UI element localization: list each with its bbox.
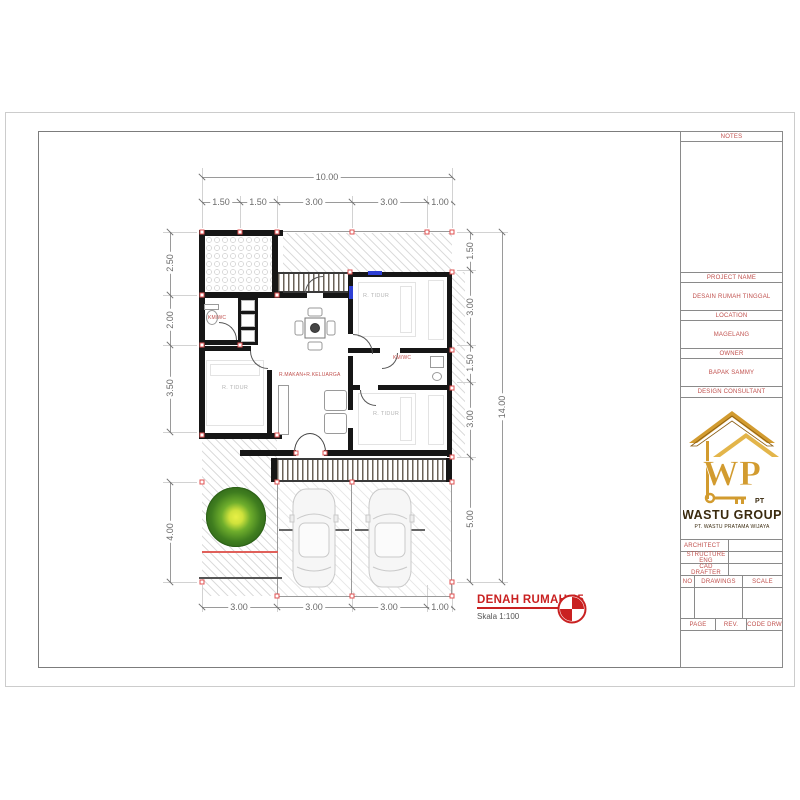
bed-pillow <box>210 364 260 376</box>
grid-marker <box>200 580 205 585</box>
dining-set <box>293 306 337 352</box>
garden-fence-line <box>199 577 282 579</box>
sofa-seat <box>324 413 347 434</box>
grid-marker <box>323 451 328 456</box>
logo-subtitle: PT. WASTU PRATAMA WIJAYA <box>694 524 770 530</box>
grid-marker <box>200 230 205 235</box>
wall-segment <box>199 340 243 345</box>
logo-monogram: WP <box>702 453 760 493</box>
terrace-tile-floor <box>205 236 272 292</box>
room-label-bedroom: R. TIDUR <box>363 293 389 299</box>
grid-marker <box>200 480 205 485</box>
dim-label: 3.50 <box>165 377 175 399</box>
project-name-value: DESAIN RUMAH TINGGAL <box>693 294 771 300</box>
titleblock-table-body <box>680 587 783 619</box>
car-top-view <box>289 487 339 589</box>
titleblock-location-value: MAGELANG <box>680 320 783 349</box>
dim-label: 4.00 <box>165 521 175 543</box>
dim-label: 14.00 <box>497 394 507 421</box>
grid-marker <box>275 594 280 599</box>
project-name-label: PROJECT NAME <box>707 275 756 281</box>
dim-extension <box>163 345 197 346</box>
grid-marker <box>450 594 455 599</box>
grid-marker <box>200 433 205 438</box>
grid-marker <box>275 293 280 298</box>
dim-label: 10.00 <box>314 172 341 182</box>
tree <box>206 487 266 547</box>
window-mark <box>368 271 382 275</box>
dim-label: 1.00 <box>429 602 451 612</box>
table-cell-scale <box>743 588 782 618</box>
grid-marker <box>200 343 205 348</box>
kitchen-sink <box>241 330 255 342</box>
dim-extension <box>163 432 197 433</box>
dim-label: 3.00 <box>465 408 475 430</box>
grid-marker <box>450 386 455 391</box>
titleblock-owner-value: BAPAK SAMMY <box>680 358 783 387</box>
roof-overhang-hatch-right <box>452 272 465 457</box>
grid-marker <box>275 433 280 438</box>
dim-label: 3.00 <box>303 197 325 207</box>
dim-label: 1.50 <box>465 352 475 374</box>
room-label-bath: KM/WC <box>208 315 226 321</box>
wall-segment <box>400 348 452 353</box>
sofa-seat <box>324 390 347 411</box>
kitchen-stove <box>241 314 255 327</box>
grid-marker <box>450 270 455 275</box>
dim-extension <box>163 482 197 483</box>
toilet-tank <box>204 304 219 310</box>
dim-label: 2.00 <box>165 309 175 331</box>
wall-segment <box>324 450 452 456</box>
wardrobe <box>428 395 444 445</box>
dim-label: 3.00 <box>465 296 475 318</box>
footer-rev-label: REV. <box>716 619 747 630</box>
dim-extension <box>457 345 476 346</box>
car-top-view <box>365 487 415 589</box>
dim-label: 2.50 <box>165 252 175 274</box>
wall-segment <box>199 433 282 439</box>
dim-extension <box>457 270 476 271</box>
owner-value: BAPAK SAMMY <box>709 370 754 376</box>
dim-label: 3.00 <box>303 602 325 612</box>
deck-band-cap <box>446 458 452 482</box>
wall-segment <box>199 346 251 351</box>
table-header-drawings: DRAWINGS <box>695 576 743 587</box>
wardrobe <box>428 280 444 340</box>
grid-marker <box>425 230 430 235</box>
table-cell-no <box>681 588 695 618</box>
room-label-bedroom: R. TIDUR <box>373 411 399 417</box>
entry-deck-band <box>277 458 446 482</box>
location-label: LOCATION <box>716 313 748 319</box>
carport-edge <box>277 482 278 597</box>
bath-fixture <box>430 356 444 368</box>
drawing-sheet: 10.00 1.50 1.50 3.00 3.00 1.00 2.50 2.00… <box>0 0 800 800</box>
structure-eng-label: STRUCTURE ENG <box>681 552 729 563</box>
garden-red-line <box>202 551 278 553</box>
cad-drafter-value <box>729 564 782 575</box>
wall-segment <box>348 385 360 390</box>
grid-marker <box>200 293 205 298</box>
north-compass-icon <box>556 593 588 625</box>
notes-label: NOTES <box>721 134 743 140</box>
grid-marker <box>450 580 455 585</box>
wall-segment <box>199 296 205 438</box>
dim-label: 1.50 <box>465 240 475 262</box>
roof-overhang-hatch-top <box>283 233 452 272</box>
dim-extension <box>163 582 197 583</box>
grid-marker <box>238 343 243 348</box>
dim-extension <box>457 582 508 583</box>
footer-codedrw-label: CODE DRW <box>747 619 782 630</box>
dim-extension <box>457 232 508 233</box>
dim-label: 3.00 <box>378 602 400 612</box>
bed-pillow <box>400 397 412 441</box>
location-value: MAGELANG <box>714 332 750 338</box>
wastu-group-logo: WP PT WASTU GROUP PT. WASTU PRATAMA WIJA… <box>683 401 781 537</box>
grid-marker <box>294 451 299 456</box>
dim-extension <box>352 598 353 612</box>
dim-label: 1.50 <box>247 197 269 207</box>
dim-label: 3.00 <box>228 602 250 612</box>
tv-cabinet <box>278 385 289 435</box>
table-header-scale: SCALE <box>743 576 782 587</box>
grid-marker <box>275 230 280 235</box>
dim-extension <box>163 232 197 233</box>
carport-edge <box>277 596 452 597</box>
dim-label: 5.00 <box>465 508 475 530</box>
owner-label: OWNER <box>720 351 744 357</box>
grid-marker <box>450 348 455 353</box>
wall-segment <box>447 272 452 457</box>
dim-label: 1.00 <box>429 197 451 207</box>
grid-marker <box>238 230 243 235</box>
dim-extension <box>457 382 476 383</box>
cad-drafter-label: CAD DRAFTER <box>681 564 729 575</box>
wall-segment <box>348 272 353 334</box>
logo-company-name: WASTU GROUP <box>683 508 781 522</box>
wall-segment <box>378 385 452 390</box>
grid-marker <box>350 230 355 235</box>
wall-segment <box>240 450 296 456</box>
titleblock-footer-blank <box>680 630 783 668</box>
grid-marker <box>350 480 355 485</box>
wall-segment <box>267 370 272 438</box>
structure-eng-value <box>729 552 782 563</box>
table-header-no: NO <box>681 576 695 587</box>
grid-marker <box>450 230 455 235</box>
dim-extension <box>163 295 197 296</box>
room-label-bedroom: R. TIDUR <box>222 385 248 391</box>
deck-band-cap <box>271 458 277 482</box>
logo-pt-label: PT <box>755 498 765 505</box>
wall-segment <box>348 272 452 277</box>
dim-label: 3.00 <box>378 197 400 207</box>
bath-fixture <box>432 372 442 381</box>
table-cell-drawings <box>695 588 743 618</box>
carport-divider <box>351 482 352 597</box>
bed-pillow <box>400 286 412 333</box>
architect-value <box>729 540 782 551</box>
titleblock-project-value: DESAIN RUMAH TINGGAL <box>680 282 783 311</box>
grid-marker <box>450 480 455 485</box>
architect-label: ARCHITECT <box>681 540 729 551</box>
room-label-bath: KM/WC <box>393 355 411 361</box>
room-label-living: R.MAKAN+R.KELUARGA <box>279 372 341 378</box>
kitchen-appliance <box>241 300 255 311</box>
footer-page-label: PAGE <box>681 619 716 630</box>
grid-marker <box>348 270 353 275</box>
window-mark <box>349 286 353 299</box>
titleblock-logo-box: WP PT WASTU GROUP PT. WASTU PRATAMA WIJA… <box>680 397 783 540</box>
grid-marker <box>450 455 455 460</box>
wall-segment <box>348 356 353 410</box>
consultant-label: DESIGN CONSULTANT <box>698 389 766 395</box>
grid-marker <box>350 594 355 599</box>
titleblock-notes-area <box>680 141 783 273</box>
grid-marker <box>275 480 280 485</box>
dim-label: 1.50 <box>210 197 232 207</box>
wall-segment <box>199 230 205 298</box>
dim-extension <box>457 457 476 458</box>
dim-extension <box>277 598 278 612</box>
